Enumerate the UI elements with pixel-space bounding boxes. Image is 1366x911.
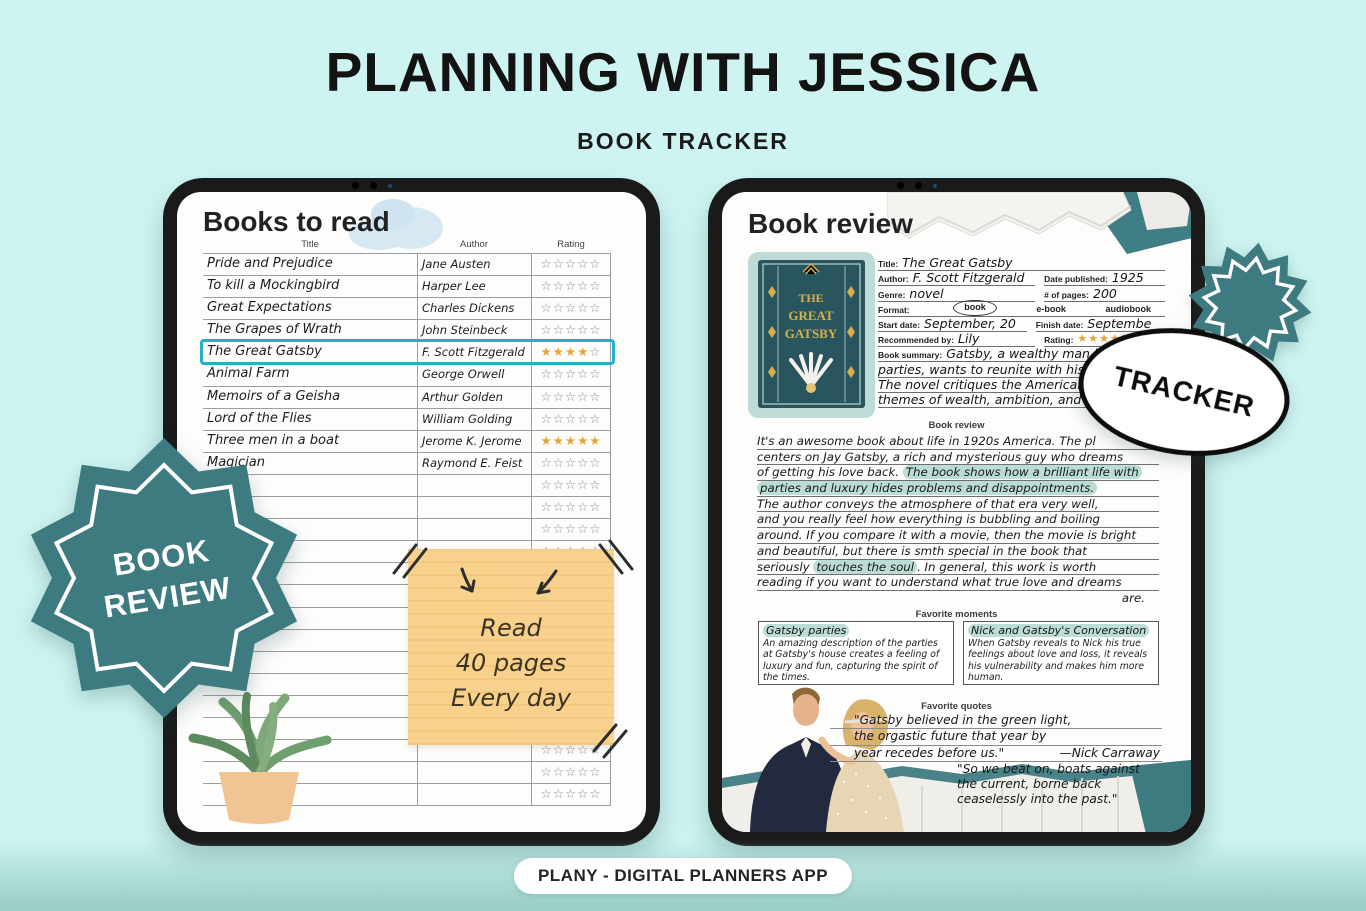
book-author-cell: F. Scott Fitzgerald (417, 342, 531, 363)
quote-line-text: year recedes before us." (854, 746, 1004, 761)
svg-text:GATSBY: GATSBY (785, 326, 838, 341)
review-text-segment: and you really feel how everything is bu… (757, 512, 1100, 526)
table-row: Animal FarmGeorge Orwell☆☆☆☆☆ (203, 364, 611, 386)
review-text-segment: It's an awesome book about life in 1920s… (757, 434, 1096, 448)
field-pages-value[interactable]: 200 (1093, 287, 1117, 301)
book-rating-stars[interactable]: ☆☆☆☆☆ (531, 784, 611, 805)
book-author-cell: Charles Dickens (417, 298, 531, 319)
book-rating-stars[interactable]: ☆☆☆☆☆ (531, 387, 611, 408)
tablet-camera-dots (897, 182, 937, 189)
form-row: Author:F. Scott FitzgeraldDate published… (878, 271, 1165, 286)
book-author-cell: Jane Austen (417, 254, 531, 275)
table-row: To kill a MockingbirdHarper Lee☆☆☆☆☆ (203, 276, 611, 298)
footer-app-label: PLANY - DIGITAL PLANNERS APP (514, 858, 852, 894)
section-header-moments: Favorite moments (722, 609, 1191, 620)
stars-empty: ☆☆☆☆☆ (540, 301, 601, 315)
field-recommended-by-label: Recommended by: (878, 335, 958, 346)
review-line: centers on Jay Gatsby, a rich and myster… (757, 450, 1159, 466)
quote-line: "Gatsby believed in the green light, (830, 713, 1162, 729)
quote-line: the current, borne back (957, 777, 1182, 792)
tablet-review: Book review (708, 178, 1205, 846)
book-title-cell: The Great Gatsby (203, 342, 417, 363)
book-author-cell: Arthur Golden (417, 387, 531, 408)
page-subtitle: BOOK TRACKER (0, 128, 1366, 155)
field-start-date-label: Start date: (878, 320, 924, 331)
quote-2: "So we beat on, boats againstthe current… (957, 762, 1182, 807)
book-review-badge: BOOK REVIEW (22, 430, 307, 726)
review-text-segment: centers on Jay Gatsby, a rich and myster… (757, 450, 1123, 464)
highlighted-text: parties and luxury hides problems and di… (757, 481, 1097, 495)
field-title: Title:The Great Gatsby (878, 256, 1165, 271)
review-line: reading if you want to understand what t… (757, 575, 1159, 591)
table-row: The Great GatsbyF. Scott Fitzgerald★★★★☆ (203, 342, 611, 364)
book-rating-stars[interactable]: ☆☆☆☆☆ (531, 497, 611, 518)
book-title-cell: The Grapes of Wrath (203, 320, 417, 341)
moment-box-2[interactable]: Nick and Gatsby's ConversationWhen Gatsb… (963, 621, 1159, 685)
field-author: Author:F. Scott Fitzgerald (878, 271, 1035, 286)
stars-empty: ☆☆☆☆☆ (540, 500, 601, 514)
stars-empty: ☆☆☆☆☆ (540, 367, 601, 381)
field-summary-line-2-value[interactable]: parties, wants to reunite with his f (878, 363, 1092, 377)
quote-1: "Gatsby believed in the green light,the … (830, 713, 1162, 762)
review-line: parties and luxury hides problems and di… (757, 481, 1159, 497)
moment-title: Nick and Gatsby's Conversation (968, 624, 1154, 637)
field-finish-date-label: Finish date: (1036, 320, 1088, 331)
review-page-title: Book review (748, 208, 913, 240)
favorite-moments: Gatsby partiesAn amazing description of … (758, 621, 1159, 685)
book-rating-stars[interactable]: ☆☆☆☆☆ (531, 762, 611, 783)
stars-empty: ☆☆☆☆☆ (540, 257, 601, 271)
quote-line: ceaselessly into the past." (957, 792, 1182, 807)
field-author-label: Author: (878, 274, 913, 285)
review-line: are. (757, 591, 1159, 606)
tracker-badge-oval: TRACKER (1071, 317, 1297, 468)
field-title-label: Title: (878, 259, 902, 270)
book-author-cell (417, 784, 531, 805)
table-row: Great ExpectationsCharles Dickens☆☆☆☆☆ (203, 298, 611, 320)
stars-empty: ☆☆☆☆☆ (540, 787, 601, 801)
field-date-published: Date published:1925 (1044, 271, 1165, 286)
review-text-segment: seriously (757, 560, 813, 574)
sticky-note[interactable]: Read40 pagesEvery day (408, 549, 614, 745)
review-text-segment: of getting his love back. (757, 465, 903, 479)
books-table-header: Title Author Rating (203, 239, 611, 253)
review-line: seriously touches the soul. In general, … (757, 560, 1159, 576)
book-author-cell: Harper Lee (417, 276, 531, 297)
field-recommended-by-value[interactable]: Lily (958, 332, 979, 346)
review-line: The author conveys the atmosphere of tha… (757, 497, 1159, 513)
moment-title: Gatsby parties (763, 624, 949, 637)
review-line: of getting his love back. The book shows… (757, 465, 1159, 481)
review-text-segment: and beautiful, but there is smth special… (757, 544, 1087, 558)
field-start-date: Start date:September, 20 (878, 317, 1027, 332)
stars-empty: ☆☆☆☆☆ (540, 390, 601, 404)
table-row: The Grapes of WrathJohn Steinbeck☆☆☆☆☆ (203, 320, 611, 342)
field-summary-label: Book summary: (878, 350, 946, 361)
form-row: Format:booke-bookaudiobook (878, 302, 1165, 317)
books-page-title: Books to read (203, 206, 390, 238)
highlighted-text: touches the soul (813, 560, 917, 574)
book-rating-stars[interactable]: ☆☆☆☆☆ (531, 276, 611, 297)
stars-empty: ☆☆☆☆☆ (540, 323, 601, 337)
quote-line: the orgastic future that year by (830, 729, 1162, 745)
field-date-published-label: Date published: (1044, 274, 1112, 285)
book-author-cell (417, 475, 531, 496)
tracker-badge: TRACKER (1071, 317, 1297, 468)
column-header-title: Title (203, 239, 417, 253)
book-rating-stars[interactable]: ☆☆☆☆☆ (531, 453, 611, 474)
format-option-audiobook[interactable]: audiobook (1105, 303, 1151, 316)
stars-empty: ☆☆☆☆☆ (540, 279, 601, 293)
column-header-author: Author (417, 239, 531, 253)
book-title-cell: Animal Farm (203, 364, 417, 385)
tablet-camera-dots (352, 182, 392, 189)
field-start-date-value[interactable]: September, 20 (924, 317, 1016, 331)
field-recommended-by: Recommended by:Lily (878, 332, 1035, 347)
stars-empty: ☆☆☆☆☆ (540, 456, 601, 470)
review-text[interactable]: It's an awesome book about life in 1920s… (757, 434, 1159, 606)
book-title-cell: To kill a Mockingbird (203, 276, 417, 297)
quote-line: year recedes before us."—Nick Carraway (830, 746, 1162, 762)
field-title-value[interactable]: The Great Gatsby (902, 256, 1012, 270)
stars-filled: ★★★★★ (540, 434, 601, 448)
book-author-cell: Raymond E. Feist (417, 453, 531, 474)
book-rating-stars[interactable]: ★★★★☆ (531, 342, 611, 363)
book-author-cell: Jerome K. Jerome (417, 431, 531, 452)
field-author-value[interactable]: F. Scott Fitzgerald (913, 271, 1025, 285)
sticky-note-pen-marks (388, 533, 638, 763)
field-date-published-value[interactable]: 1925 (1112, 271, 1144, 285)
review-text-segment: are. (1122, 591, 1145, 605)
moment-text: When Gatsby reveals to Nick his true fee… (968, 638, 1154, 683)
book-rating-stars[interactable]: ★★★★★ (531, 431, 611, 452)
svg-text:GREAT: GREAT (788, 308, 834, 323)
table-row: Memoirs of a GeishaArthur Golden☆☆☆☆☆ (203, 387, 611, 409)
book-cover: THE GREAT GATSBY (748, 252, 875, 418)
quote-attribution: —Nick Carraway (1060, 746, 1160, 761)
book-title-cell: Pride and Prejudice (203, 254, 417, 275)
column-header-rating: Rating (531, 239, 611, 253)
book-title-cell: Great Expectations (203, 298, 417, 319)
field-format-label: Format: (878, 305, 914, 316)
field-format: Format:booke-bookaudiobook (878, 300, 1165, 317)
quote-line: "So we beat on, boats against (957, 762, 1182, 777)
field-rating-label: Rating: (1044, 335, 1077, 346)
book-author-cell: John Steinbeck (417, 320, 531, 341)
book-review-badge-text: BOOK REVIEW (1, 410, 329, 747)
moment-text: An amazing description of the parties at… (763, 638, 949, 683)
book-rating-stars[interactable]: ☆☆☆☆☆ (531, 409, 611, 430)
book-cover-art: THE GREAT GATSBY (758, 260, 865, 408)
format-option-e-book[interactable]: e-book (1036, 303, 1066, 316)
stars-empty: ☆☆☆☆☆ (540, 412, 601, 426)
field-genre-value[interactable]: novel (909, 287, 943, 301)
page-title: PLANNING WITH JESSICA (0, 40, 1366, 104)
review-text-segment: around. If you compare it with a movie, … (757, 528, 1136, 542)
format-option-book[interactable]: book (953, 300, 997, 316)
form-row: Title:The Great Gatsby (878, 256, 1165, 271)
book-author-cell (417, 497, 531, 518)
moment-title-highlight: Nick and Gatsby's Conversation (968, 624, 1149, 637)
review-text-segment: reading if you want to understand what t… (757, 575, 1122, 589)
review-line: and you really feel how everything is bu… (757, 512, 1159, 528)
tracker-badge-text: TRACKER (1110, 360, 1257, 424)
book-rating-stars[interactable]: ☆☆☆☆☆ (531, 254, 611, 275)
highlighted-text: The book shows how a brilliant life with (903, 465, 1142, 479)
review-text-segment: The author conveys the atmosphere of tha… (757, 497, 1098, 511)
review-line: around. If you compare it with a movie, … (757, 528, 1159, 544)
review-line: and beautiful, but there is smth special… (757, 544, 1159, 560)
review-screen: Book review (722, 192, 1191, 832)
review-text-segment: . In general, this work is worth (917, 560, 1096, 574)
moment-box-1[interactable]: Gatsby partiesAn amazing description of … (758, 621, 954, 685)
book-rating-stars[interactable]: ☆☆☆☆☆ (531, 364, 611, 385)
page-canvas: PLANNING WITH JESSICA BOOK TRACKER Books… (0, 0, 1366, 911)
book-author-cell: George Orwell (417, 364, 531, 385)
book-title-cell: Memoirs of a Geisha (203, 387, 417, 408)
stars-empty: ☆ (589, 345, 601, 359)
stars-empty: ☆☆☆☆☆ (540, 478, 601, 492)
stars-filled: ★★★★ (540, 345, 589, 359)
book-rating-stars[interactable]: ☆☆☆☆☆ (531, 320, 611, 341)
book-rating-stars[interactable]: ☆☆☆☆☆ (531, 298, 611, 319)
book-author-cell: William Golding (417, 409, 531, 430)
svg-text:THE: THE (798, 291, 823, 305)
moment-title-highlight: Gatsby parties (763, 624, 849, 637)
table-row: Pride and PrejudiceJane Austen☆☆☆☆☆ (203, 254, 611, 276)
book-author-cell (417, 762, 531, 783)
book-rating-stars[interactable]: ☆☆☆☆☆ (531, 475, 611, 496)
stars-empty: ☆☆☆☆☆ (540, 765, 601, 779)
